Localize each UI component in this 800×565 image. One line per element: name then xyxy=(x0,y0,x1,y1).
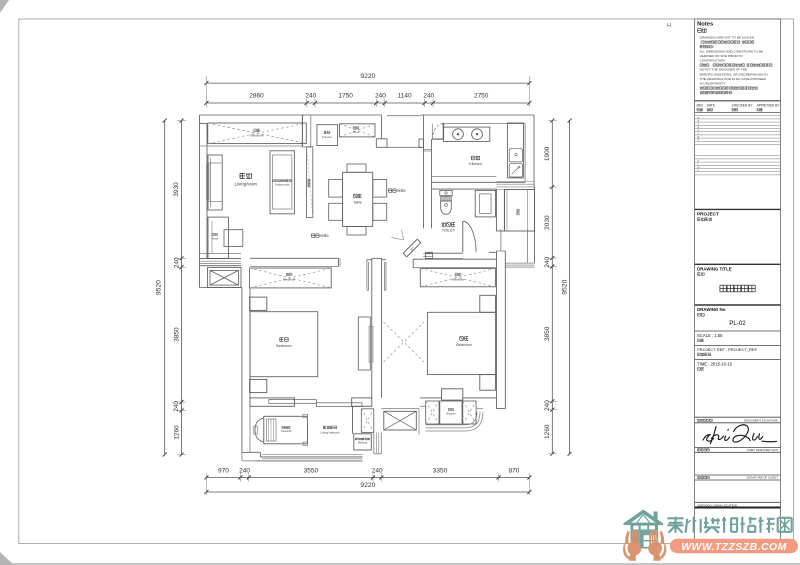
svg-text:PROJECT REF : PROJECT_REF: PROJECT REF : PROJECT_REF xyxy=(697,347,757,352)
svg-text:1260: 1260 xyxy=(544,424,551,439)
svg-text:CONSTRUCTION.: CONSTRUCTION. xyxy=(700,59,726,63)
svg-text:DRAWINGS ARE NOT TO BE SCALED.: DRAWINGS ARE NOT TO BE SCALED. xyxy=(700,36,756,40)
svg-text:DESIGNER'S SIGNATURE: DESIGNER'S SIGNATURE xyxy=(744,418,778,422)
svg-text:1900: 1900 xyxy=(544,146,551,161)
svg-text:,: , xyxy=(758,86,759,90)
svg-text:2750: 2750 xyxy=(474,93,489,100)
svg-text:.: . xyxy=(732,91,733,95)
svg-text:240: 240 xyxy=(305,93,316,100)
svg-text:Bedroom: Bedroom xyxy=(276,344,291,348)
svg-text:IN UNCERTAINTY.: IN UNCERTAINTY. xyxy=(700,82,726,86)
svg-text:240: 240 xyxy=(372,468,383,475)
svg-text:3930: 3930 xyxy=(173,182,180,197)
svg-text:TIME : 2015-10-15: TIME : 2015-10-15 xyxy=(697,362,733,367)
svg-text:9220: 9220 xyxy=(360,482,375,489)
svg-text:THE DRAWINGS,AND IN NO CASE PR: THE DRAWINGS,AND IN NO CASE PROCEED xyxy=(700,77,767,81)
svg-text:1140: 1140 xyxy=(398,93,412,100)
svg-text:240: 240 xyxy=(173,257,180,268)
svg-text:Treadmill: Treadmill xyxy=(281,429,292,433)
svg-text:CHECKED BY: CHECKED BY xyxy=(732,103,754,107)
svg-text:SCALE : 1:55: SCALE : 1:55 xyxy=(697,333,723,338)
svg-text:240: 240 xyxy=(173,400,180,411)
svg-text:,: , xyxy=(740,40,741,44)
svg-text:Livingroom: Livingroom xyxy=(234,182,257,187)
svg-text:970: 970 xyxy=(218,468,229,475)
svg-text:Kitchen: Kitchen xyxy=(469,162,482,166)
svg-text:9520: 9520 xyxy=(156,280,163,295)
svg-text:3350: 3350 xyxy=(433,468,448,475)
svg-text:): ) xyxy=(713,45,714,49)
svg-text:SIGNATURE OF CLIENT: SIGNATURE OF CLIENT xyxy=(747,476,779,480)
svg-text:2860: 2860 xyxy=(249,93,264,100)
svg-text:2030: 2030 xyxy=(544,215,551,230)
svg-text:Aisle: Aisle xyxy=(397,188,407,193)
svg-text:Window: Window xyxy=(446,412,455,416)
svg-text:Washing: Washing xyxy=(358,442,368,445)
svg-text:ALL DIMENSIONS AND CONDITIONS: ALL DIMENSIONS AND CONDITIONS TO BE xyxy=(700,49,763,53)
svg-text:240: 240 xyxy=(544,256,551,267)
svg-text:DATE: DATE xyxy=(707,103,715,107)
svg-text:1750: 1750 xyxy=(338,93,353,100)
svg-text:Notes: Notes xyxy=(697,22,713,28)
svg-text:,: , xyxy=(709,63,710,67)
svg-text:Living balcony: Living balcony xyxy=(320,431,340,435)
svg-text:3550: 3550 xyxy=(304,468,319,475)
svg-text:Shoe: Shoe xyxy=(353,130,360,134)
svg-text:870: 870 xyxy=(509,468,520,475)
svg-text:VERIFIED ON SITE PRIOR TO: VERIFIED ON SITE PRIOR TO xyxy=(700,54,744,58)
svg-text:Aisle: Aisle xyxy=(320,233,330,238)
svg-text:1260: 1260 xyxy=(173,425,180,440)
svg-text:PROJECT: PROJECT xyxy=(697,212,719,217)
svg-text:CHIEF DESIGNER SIGN: CHIEF DESIGNER SIGN xyxy=(747,448,778,452)
svg-text:Wardrobe: Wardrobe xyxy=(452,278,465,282)
svg-text:DRAWING TITLE: DRAWING TITLE xyxy=(697,266,732,271)
svg-text:ERRORS,OMISSIONS, OR DISCREPAN: ERRORS,OMISSIONS, OR DISCREPANCIES IN xyxy=(700,72,768,76)
svg-text:PL-02: PL-02 xyxy=(729,320,746,327)
svg-text:,: , xyxy=(745,63,746,67)
svg-text:3850: 3850 xyxy=(544,326,551,341)
svg-text:Wardrobe: Wardrobe xyxy=(283,278,296,282)
svg-text:TOILET: TOILET xyxy=(442,229,456,233)
svg-text:240: 240 xyxy=(423,93,434,100)
svg-text:H: H xyxy=(667,23,671,29)
svg-text:WWW.TZZSZB.COM: WWW.TZZSZB.COM xyxy=(681,542,787,553)
svg-text:DRAWING No: DRAWING No xyxy=(697,307,726,312)
svg-text:Freezer: Freezer xyxy=(322,135,332,139)
svg-text:Desk: Desk xyxy=(212,237,219,241)
svg-text:NOTIFY THE DESIGNER OF THE: NOTIFY THE DESIGNER OF THE xyxy=(700,68,747,72)
svg-text:240: 240 xyxy=(239,468,250,475)
svg-text:9220: 9220 xyxy=(360,73,375,80)
svg-text:REV: REV xyxy=(697,103,704,107)
svg-text:Table: Table xyxy=(353,201,362,205)
svg-text:Wardrobe: Wardrobe xyxy=(250,134,263,138)
svg-text:APPROVED BY: APPROVED BY xyxy=(757,103,781,107)
svg-text:9520: 9520 xyxy=(561,279,568,294)
svg-text:240: 240 xyxy=(375,93,386,100)
svg-text:240: 240 xyxy=(544,400,551,411)
svg-text:Bedroom: Bedroom xyxy=(456,343,471,347)
svg-text:Folding sofa: Folding sofa xyxy=(275,183,290,187)
svg-text:3850: 3850 xyxy=(173,327,180,342)
